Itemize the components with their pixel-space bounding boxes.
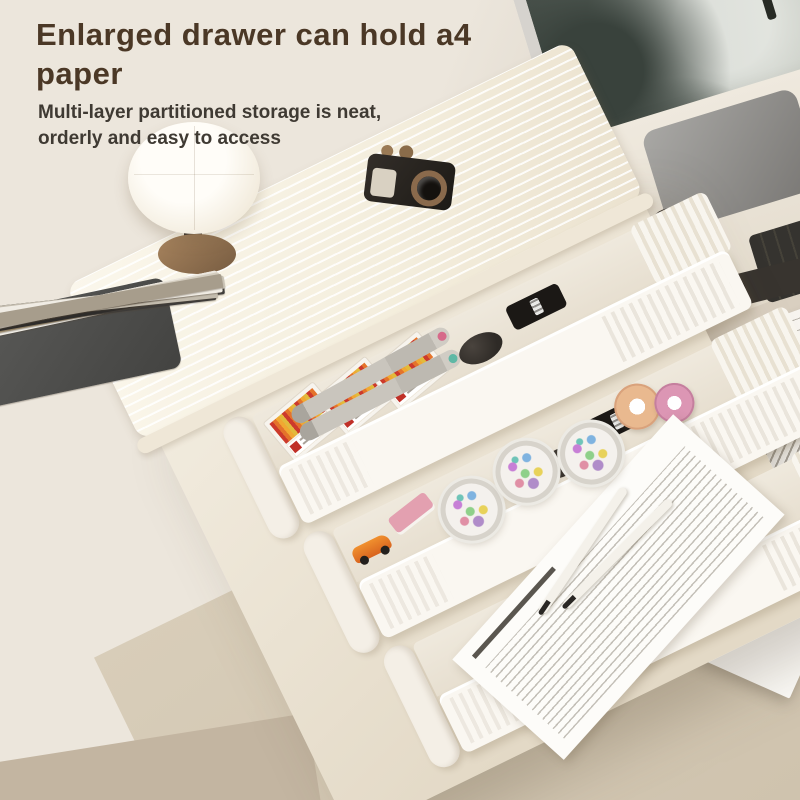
subheadline: Multi-layer partitioned storage is neat,… [38, 100, 388, 151]
headline: Enlarged drawer can hold a4 paper [36, 16, 516, 94]
artwork-warrior [761, 0, 777, 20]
toy-camera [362, 141, 457, 217]
product-photo: DESIGN AND ARCHITECTURE [0, 0, 800, 800]
toy-car [350, 532, 393, 564]
lamp-base [158, 234, 236, 274]
